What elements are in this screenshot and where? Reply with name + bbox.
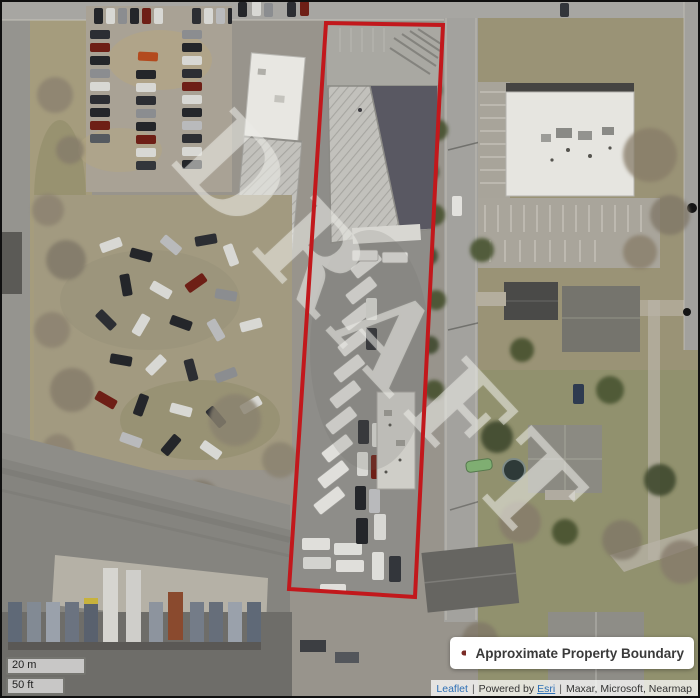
powered-by-text: Powered by [479, 683, 534, 695]
esri-link[interactable]: Esri [537, 683, 555, 695]
car-column [90, 30, 110, 143]
boundary-line-swatch [460, 649, 466, 657]
scale-control: 20 m 50 ft [6, 657, 86, 697]
legend: Approximate Property Boundary [450, 637, 694, 669]
car-column [182, 30, 202, 169]
attribution-separator: | [472, 683, 475, 695]
scale-metric: 20 m [6, 657, 86, 675]
legend-label: Approximate Property Boundary [475, 646, 684, 661]
leaflet-link[interactable]: Leaflet [436, 683, 468, 695]
map-container[interactable]: DRAFT Approximate Property Boundary 20 m… [0, 0, 700, 698]
main-warehouse-roof [328, 86, 440, 244]
northwest-parking-lot [78, 6, 232, 192]
scale-imperial: 50 ft [6, 677, 65, 695]
aerial-imagery [0, 0, 700, 698]
white-commercial-building [506, 83, 634, 196]
car-row [94, 8, 232, 24]
attribution-bar: Leaflet|Powered byEsri|Maxar, Microsoft,… [431, 680, 700, 698]
attribution-separator: | [559, 683, 562, 695]
pool [503, 459, 525, 481]
attribution-sources: Maxar, Microsoft, Nearmap [566, 683, 692, 695]
